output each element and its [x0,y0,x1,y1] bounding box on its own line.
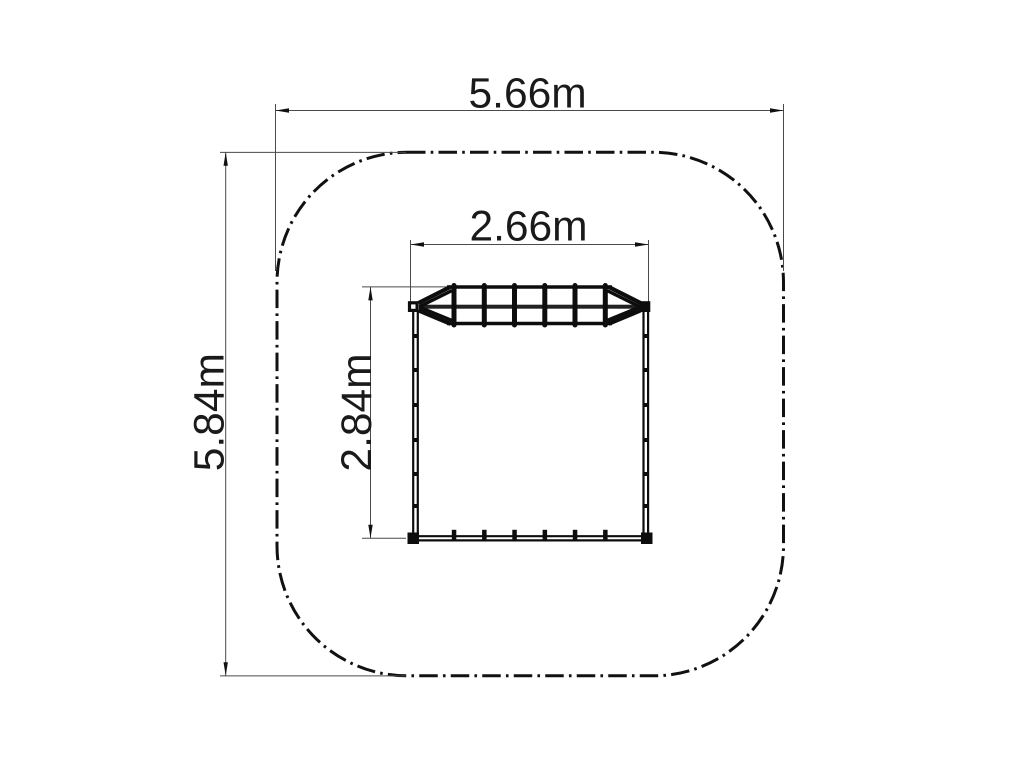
svg-text:5.84m: 5.84m [187,353,234,471]
svg-text:2.66m: 2.66m [469,204,587,251]
svg-text:5.66m: 5.66m [469,71,587,118]
svg-text:2.84m: 2.84m [334,353,381,471]
